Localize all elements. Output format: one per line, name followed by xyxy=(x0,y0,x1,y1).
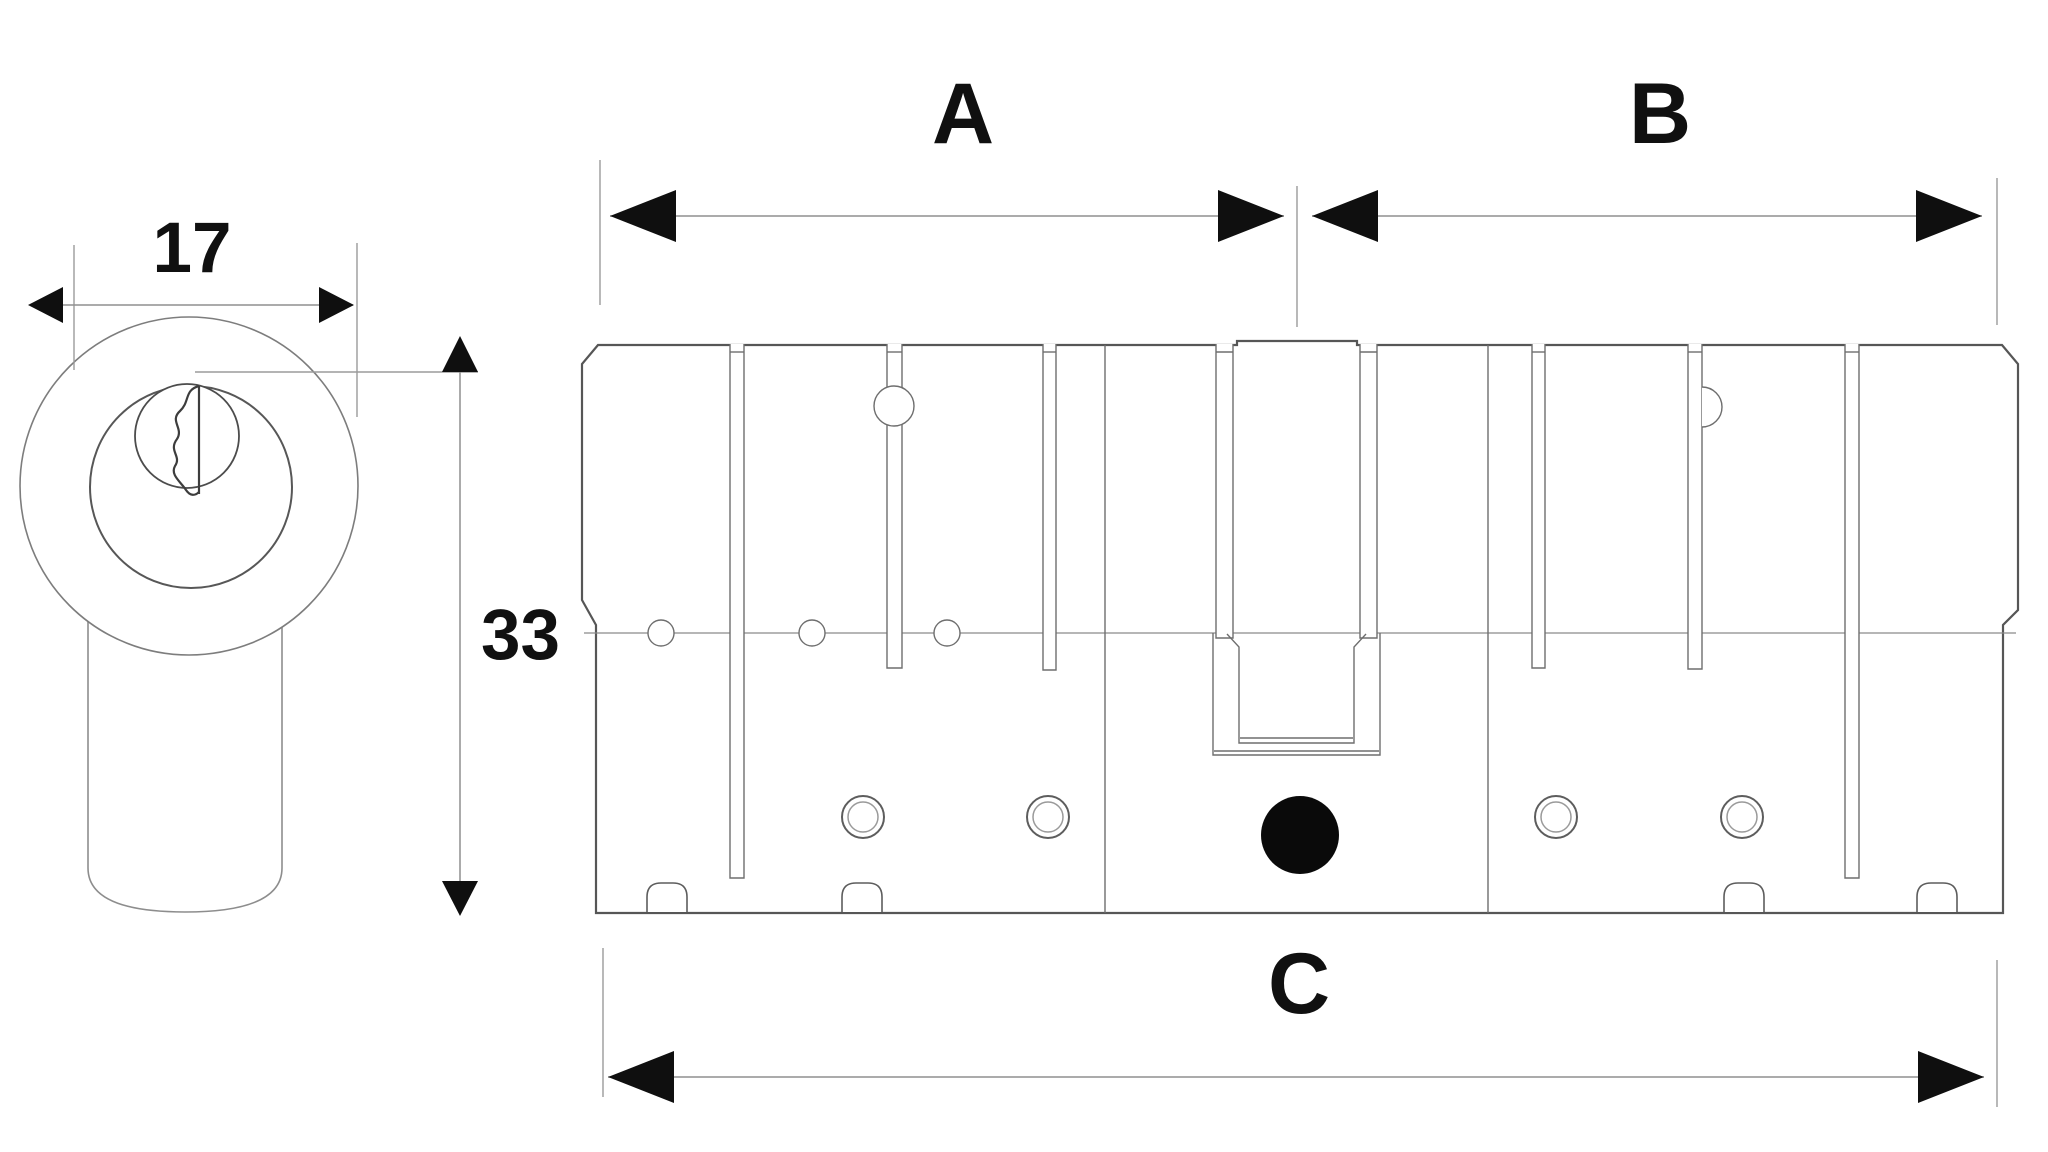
slot xyxy=(1360,344,1377,638)
chamber-cap xyxy=(648,620,674,646)
arrowhead-left xyxy=(28,287,63,323)
arrowhead-right xyxy=(319,287,354,323)
dim-label-17: 17 xyxy=(153,209,232,288)
arrowhead-right xyxy=(1918,1051,1984,1103)
arrowhead-up xyxy=(442,336,478,372)
notch xyxy=(1917,883,1957,912)
arrowhead-left xyxy=(610,190,676,242)
dim-label-33: 33 xyxy=(481,596,560,675)
slot xyxy=(1216,344,1233,638)
dim-label-a: A xyxy=(932,66,994,162)
dimension-c: C xyxy=(603,936,1997,1107)
notch xyxy=(842,883,882,912)
arrowhead-right xyxy=(1916,190,1982,242)
slot xyxy=(1043,344,1056,670)
pin-hole xyxy=(874,386,914,426)
cam-dot xyxy=(1261,796,1339,874)
lock-cylinder-dimension-diagram: 17 33 xyxy=(0,0,2048,1152)
dimension-a: A xyxy=(600,66,1297,327)
slot xyxy=(1688,344,1702,669)
end-view xyxy=(20,317,358,912)
slot xyxy=(730,344,744,878)
notch xyxy=(1724,883,1764,912)
drawing-canvas: 17 33 xyxy=(0,0,2048,1152)
notch xyxy=(647,883,687,912)
slot xyxy=(1532,344,1545,668)
chamber-cap xyxy=(934,620,960,646)
slot xyxy=(1845,344,1859,878)
arrowhead-down xyxy=(442,881,478,916)
dim-label-b: B xyxy=(1629,66,1691,162)
dim-label-c: C xyxy=(1268,936,1330,1032)
arrowhead-left xyxy=(1312,190,1378,242)
dimension-b: B xyxy=(1312,66,1997,325)
arrowhead-left xyxy=(608,1051,674,1103)
chamber-cap xyxy=(799,620,825,646)
side-view xyxy=(582,341,2018,913)
arrowhead-right xyxy=(1218,190,1284,242)
